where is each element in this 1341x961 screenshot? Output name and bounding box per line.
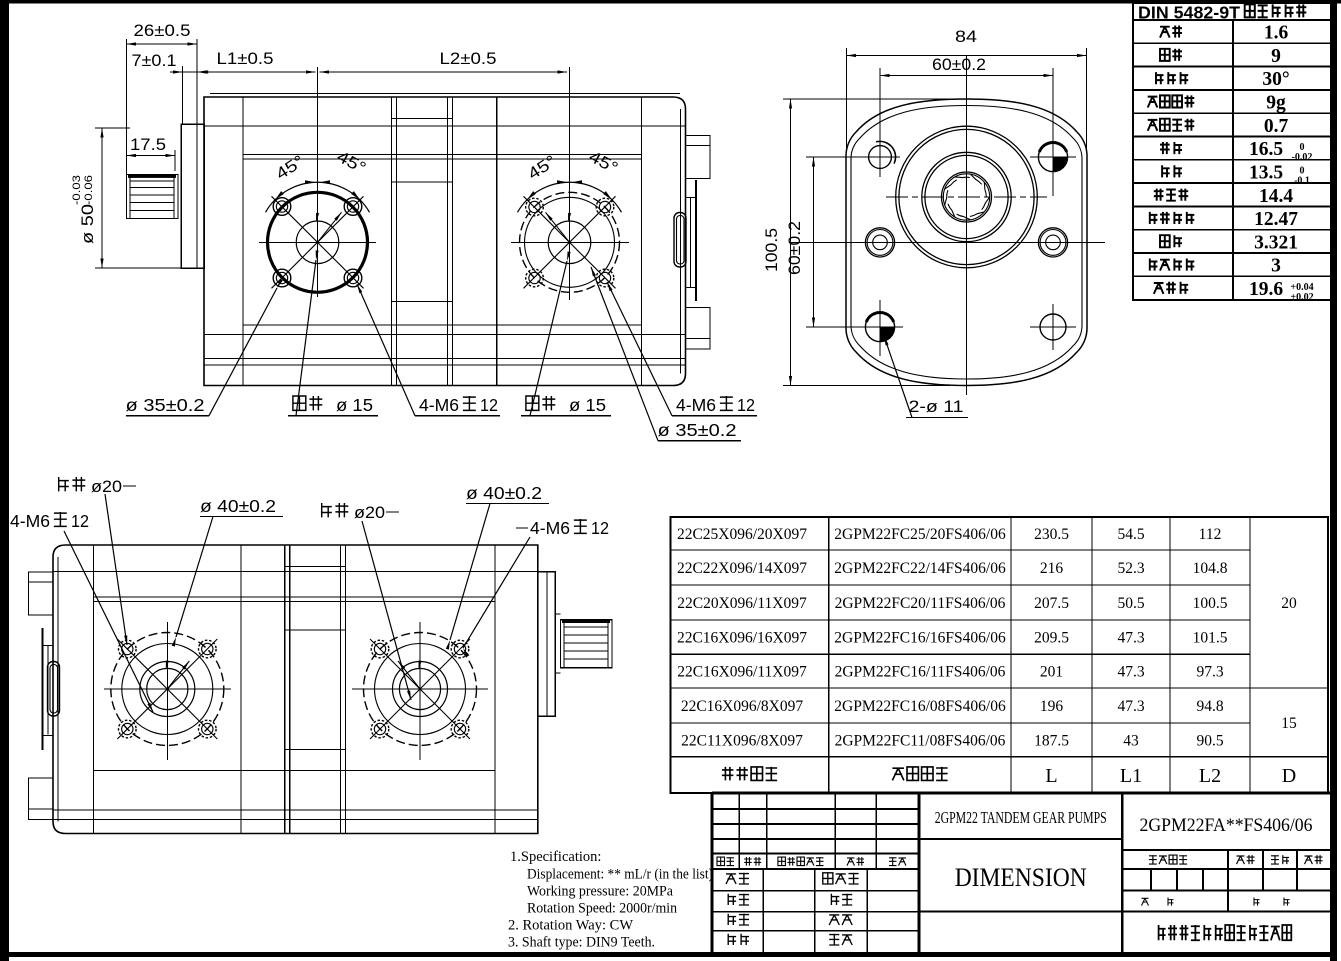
svg-text:15: 15 — [1281, 715, 1297, 732]
svg-text:-0.06: -0.06 — [83, 175, 95, 205]
svg-text:216: 216 — [1040, 560, 1064, 577]
svg-text:+0.02: +0.02 — [1290, 292, 1313, 303]
svg-text:12: 12 — [591, 518, 609, 538]
svg-text:13.5: 13.5 — [1249, 162, 1283, 183]
svg-text:ø20: ø20 — [91, 477, 122, 496]
svg-text:Working pressure: 20MPa: Working pressure: 20MPa — [527, 884, 674, 900]
svg-text:26±0.5: 26±0.5 — [134, 21, 191, 40]
svg-text:22C11X096/8X097: 22C11X096/8X097 — [681, 732, 803, 749]
svg-text:3. Shaft type: DIN9 Teeth.: 3. Shaft type: DIN9 Teeth. — [508, 935, 655, 951]
svg-text:D: D — [1282, 765, 1296, 787]
svg-text:52.3: 52.3 — [1117, 560, 1144, 577]
svg-text:60±0.2: 60±0.2 — [932, 55, 986, 74]
svg-text:4-M6: 4-M6 — [10, 511, 50, 531]
svg-text:22C16X096/16X097: 22C16X096/16X097 — [677, 630, 807, 647]
svg-text:2GPM22FC16/16FS406/06: 2GPM22FC16/16FS406/06 — [834, 630, 1006, 647]
svg-text:ø 40±0.2: ø 40±0.2 — [466, 483, 542, 503]
svg-text:L1: L1 — [1120, 765, 1142, 787]
svg-text:22C25X096/20X097: 22C25X096/20X097 — [677, 526, 807, 543]
svg-text:207.5: 207.5 — [1034, 595, 1069, 612]
svg-text:22C16X096/11X097: 22C16X096/11X097 — [677, 664, 807, 681]
svg-text:4-M6: 4-M6 — [419, 395, 459, 415]
svg-text:-0.1: -0.1 — [1294, 175, 1310, 186]
svg-text:196: 196 — [1040, 698, 1064, 715]
svg-text:2GPM22FC25/20FS406/06: 2GPM22FC25/20FS406/06 — [834, 526, 1006, 543]
svg-text:97.3: 97.3 — [1196, 664, 1223, 681]
svg-text:112: 112 — [1199, 526, 1222, 543]
svg-text:94.8: 94.8 — [1196, 698, 1223, 715]
svg-text:0.7: 0.7 — [1264, 116, 1289, 137]
svg-text:9g: 9g — [1266, 93, 1286, 114]
svg-text:DIMENSION: DIMENSION — [955, 863, 1087, 892]
svg-text:9: 9 — [1271, 46, 1281, 67]
svg-text:22C20X096/11X097: 22C20X096/11X097 — [677, 595, 807, 612]
svg-text:-0.03: -0.03 — [71, 175, 83, 205]
svg-text:L: L — [1045, 765, 1057, 787]
svg-text:22C22X096/14X097: 22C22X096/14X097 — [677, 560, 807, 577]
svg-text:2-ø 11: 2-ø 11 — [909, 397, 964, 416]
svg-text:100.5: 100.5 — [762, 228, 781, 272]
svg-text:2GPM22FC16/11FS406/06: 2GPM22FC16/11FS406/06 — [835, 664, 1006, 681]
svg-text:-0.02: -0.02 — [1292, 152, 1313, 163]
svg-text:104.8: 104.8 — [1193, 560, 1228, 577]
svg-text:209.5: 209.5 — [1034, 630, 1069, 647]
svg-text:17.5: 17.5 — [130, 135, 166, 154]
svg-text:20: 20 — [1281, 595, 1297, 612]
svg-text:L2: L2 — [1199, 765, 1221, 787]
svg-text:ø 50: ø 50 — [78, 204, 97, 244]
svg-text:2GPM22FC22/14FS406/06: 2GPM22FC22/14FS406/06 — [834, 560, 1006, 577]
svg-text:ø 15: ø 15 — [569, 395, 606, 415]
svg-text:22C16X096/8X097: 22C16X096/8X097 — [681, 698, 804, 715]
svg-text:L1±0.5: L1±0.5 — [217, 49, 274, 68]
svg-text:47.3: 47.3 — [1117, 698, 1144, 715]
svg-text:Rotation Speed: 2000r/min: Rotation Speed: 2000r/min — [527, 901, 678, 917]
svg-text:ø20: ø20 — [354, 503, 385, 522]
svg-text:2GPM22 TANDEM GEAR PUMPS: 2GPM22 TANDEM GEAR PUMPS — [935, 808, 1107, 827]
svg-text:7±0.1: 7±0.1 — [132, 51, 177, 70]
svg-text:4-M6: 4-M6 — [676, 395, 716, 415]
svg-text:L2±0.5: L2±0.5 — [440, 49, 497, 68]
svg-text:2GPM22FC16/08FS406/06: 2GPM22FC16/08FS406/06 — [834, 698, 1006, 715]
svg-text:60±0.2: 60±0.2 — [785, 221, 804, 275]
svg-text:Displacement: ** mL/r (in the: Displacement: ** mL/r (in the list) — [527, 867, 713, 883]
svg-text:16.5: 16.5 — [1249, 139, 1283, 160]
svg-text:230.5: 230.5 — [1034, 526, 1069, 543]
svg-text:12.47: 12.47 — [1254, 209, 1298, 230]
svg-text:2. Rotation Way: CW: 2. Rotation Way: CW — [508, 918, 633, 934]
svg-text:43: 43 — [1123, 732, 1139, 749]
svg-text:2GPM22FA**FS406/06: 2GPM22FA**FS406/06 — [1140, 815, 1313, 836]
svg-text:4-M6: 4-M6 — [530, 518, 570, 538]
svg-text:ø 35±0.2: ø 35±0.2 — [658, 420, 737, 440]
svg-text:1.6: 1.6 — [1264, 23, 1289, 44]
svg-text:14.4: 14.4 — [1259, 186, 1293, 207]
svg-text:1.Specification:: 1.Specification: — [510, 849, 601, 865]
svg-text:47.3: 47.3 — [1117, 630, 1144, 647]
svg-text:3.321: 3.321 — [1254, 232, 1298, 253]
svg-text:90.5: 90.5 — [1196, 732, 1223, 749]
svg-text:DIN 5482-9T: DIN 5482-9T — [1138, 3, 1240, 23]
svg-text:ø 15: ø 15 — [336, 395, 373, 415]
svg-text:187.5: 187.5 — [1034, 732, 1069, 749]
svg-text:100.5: 100.5 — [1193, 595, 1228, 612]
svg-text:84: 84 — [955, 27, 977, 46]
svg-text:47.3: 47.3 — [1117, 664, 1144, 681]
svg-text:19.6: 19.6 — [1249, 279, 1283, 300]
svg-text:2GPM22FC11/08FS406/06: 2GPM22FC11/08FS406/06 — [835, 732, 1006, 749]
svg-text:12: 12 — [71, 511, 89, 531]
svg-text:ø 40±0.2: ø 40±0.2 — [200, 496, 276, 516]
svg-text:3: 3 — [1271, 256, 1281, 277]
svg-text:201: 201 — [1040, 664, 1063, 681]
svg-text:50.5: 50.5 — [1117, 595, 1144, 612]
svg-text:ø 35±0.2: ø 35±0.2 — [126, 395, 205, 415]
svg-text:2GPM22FC20/11FS406/06: 2GPM22FC20/11FS406/06 — [835, 595, 1006, 612]
svg-text:30°: 30° — [1262, 69, 1289, 90]
svg-text:54.5: 54.5 — [1117, 526, 1144, 543]
svg-text:101.5: 101.5 — [1193, 630, 1228, 647]
svg-text:12: 12 — [480, 395, 498, 415]
svg-text:12: 12 — [737, 395, 755, 415]
